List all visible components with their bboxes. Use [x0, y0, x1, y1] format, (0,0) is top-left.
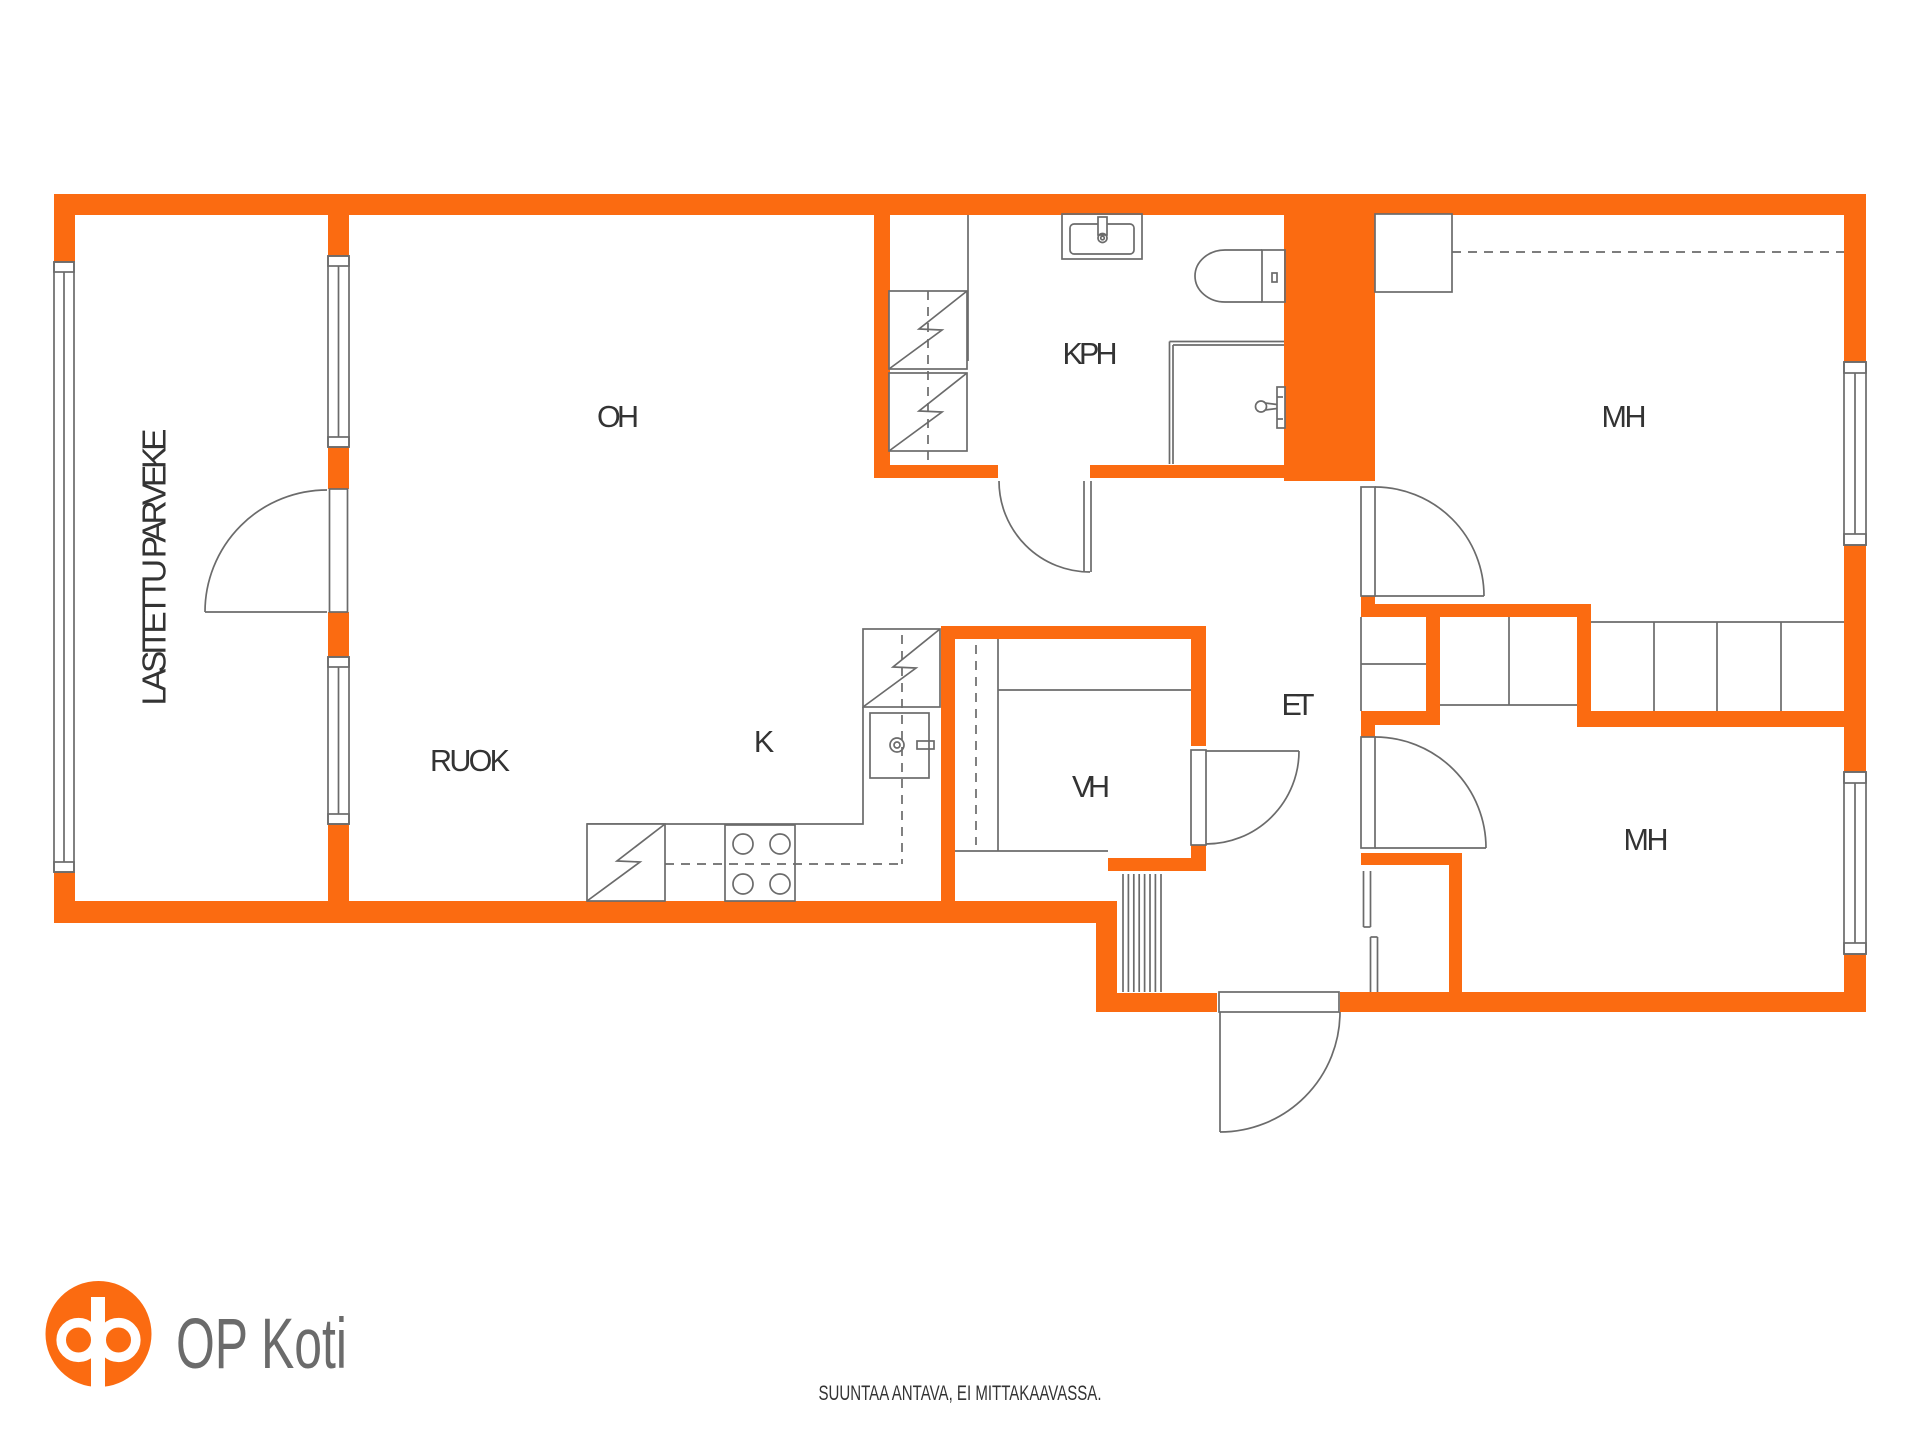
- svg-text:SUUNTAA ANTAVA, EI MITTAKAAVAS: SUUNTAA ANTAVA, EI MITTAKAAVASSA.: [819, 1381, 1102, 1405]
- svg-text:OP Koti: OP Koti: [176, 1305, 347, 1384]
- svg-text:KPH: KPH: [1063, 337, 1118, 371]
- svg-text:MH: MH: [1602, 400, 1647, 434]
- svg-text:RUOK: RUOK: [430, 744, 510, 778]
- svg-text:OH: OH: [597, 400, 639, 434]
- svg-text:LASITETTU PARVEKE: LASITETTU PARVEKE: [137, 429, 174, 706]
- svg-text:MH: MH: [1624, 823, 1669, 857]
- svg-text:K: K: [754, 725, 774, 759]
- svg-text:VH: VH: [1072, 770, 1110, 804]
- svg-text:ET: ET: [1282, 688, 1315, 722]
